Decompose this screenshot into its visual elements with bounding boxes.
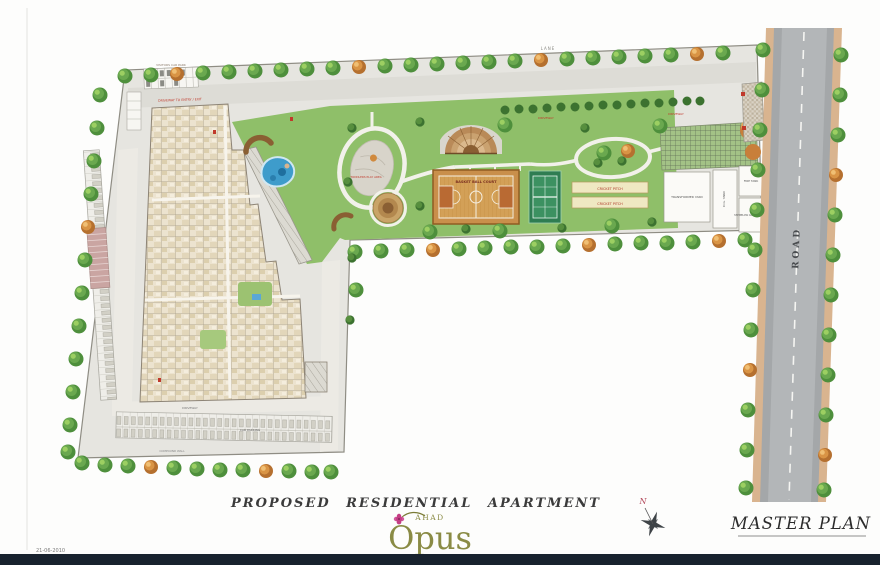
transformer-label: TRANSFORMER YARD [670,195,703,199]
driveway-mid-label: DRIVEWAY [538,116,554,120]
footer-bar [0,554,880,565]
courtyard-green-2 [200,330,226,349]
gate-tree [745,144,761,160]
corner-stalls [127,92,141,130]
fire-label: FIRE TANK [744,179,759,183]
compound-wall-label: COMPOUND WALL [159,449,185,453]
drawing-name-title: MASTER PLAN [730,514,871,533]
gate-post-1 [741,92,745,96]
dg-label: D.G. YARD [722,191,726,207]
north-label: N [639,497,648,506]
south-parking-row [116,412,332,443]
plan-marker-1 [213,130,216,134]
gate-post-2 [742,126,746,130]
drawing-date: 21-06-2010 [36,548,65,554]
project-name-logo: Opus [388,519,472,557]
basketball-label: BASKET BALL COURT [456,180,498,184]
site-plan-canvas: TODDLERS PLAY AREA [0,0,880,565]
toddlers-label: TODDLERS PLAY AREA [349,175,381,179]
driveway-bottom-label: DRIVEWAY [182,406,198,410]
lane-label: LANE [541,46,556,51]
plan-marker-3 [158,378,161,382]
cricket-pitch-1-label: CRICKET PITCH [597,187,623,191]
plan-marker-2 [290,117,293,121]
swimming-pool [261,157,294,186]
courtyard-water [252,294,261,300]
basketball-court: BASKET BALL COURT [433,170,519,224]
master-plan-sheet: TODDLERS PLAY AREA [0,0,880,565]
car-parking-label: CAR PARKING [240,428,261,432]
project-type-title: PROPOSED RESIDENTIAL APARTMENT [230,496,601,511]
tennis-court [529,171,561,223]
driveway-right-label: DRIVEWAY [668,112,684,116]
gazebo [371,191,406,226]
road-label: ROAD [791,227,802,269]
service-ramp-block [305,362,327,392]
cricket-pitch-2-label: CRICKET PITCH [597,202,623,206]
visitors-label: VISITORS CAR PARK [156,63,187,67]
